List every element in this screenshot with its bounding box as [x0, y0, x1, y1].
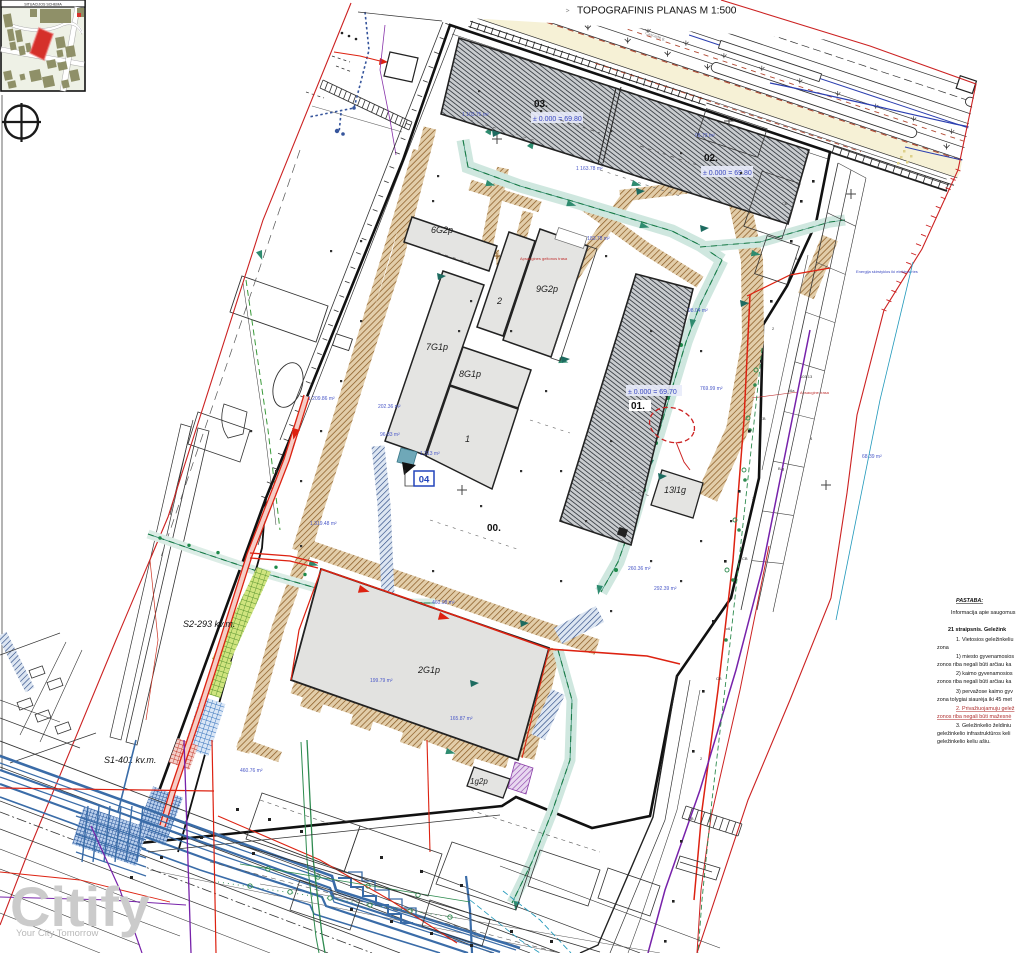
svg-text:Informacija apie saugomus: Informacija apie saugomus	[951, 610, 1016, 616]
svg-text:6G2p: 6G2p	[431, 225, 453, 235]
svg-text:Your City Tomorrow: Your City Tomorrow	[16, 928, 99, 939]
svg-text:769.99 m²: 769.99 m²	[700, 386, 723, 392]
svg-text:9G2p: 9G2p	[536, 284, 558, 294]
svg-text:zona tolygiai siaurėja iki 45: zona tolygiai siaurėja iki 45 met	[937, 697, 1012, 703]
svg-text:± 0.000 = 69.80: ± 0.000 = 69.80	[703, 170, 752, 177]
svg-text:1 313 m²: 1 313 m²	[420, 451, 440, 457]
svg-text:98.04 m²: 98.04 m²	[688, 308, 708, 314]
svg-text:460.76 m²: 460.76 m²	[240, 768, 263, 774]
svg-text:460.08 m²: 460.08 m²	[432, 600, 455, 606]
svg-text:260.36 m²: 260.36 m²	[628, 566, 651, 572]
svg-text:13l1g: 13l1g	[664, 485, 686, 495]
svg-text:± 0.000 = 69.80: ± 0.000 = 69.80	[533, 116, 582, 123]
svg-text:1. Vietosios geležinkeliu: 1. Vietosios geležinkeliu	[956, 637, 1013, 643]
svg-text:1 163.78 m²: 1 163.78 m²	[576, 166, 603, 172]
svg-text:B-g: B-g	[778, 466, 784, 471]
svg-text:3. Geležinkelio želdiniu: 3. Geležinkelio želdiniu	[956, 723, 1011, 729]
svg-text:Apsaugines geltonos trasa: Apsaugines geltonos trasa	[520, 256, 568, 261]
svg-text:TOPOGRAFINIS PLANAS M 1:500: TOPOGRAFINIS PLANAS M 1:500	[577, 6, 737, 17]
svg-text:geležinkelio keliu ašiu.: geležinkelio keliu ašiu.	[937, 739, 991, 745]
svg-text:PASTABA:: PASTABA:	[956, 598, 983, 604]
svg-text:2. Privažiuojamuju gelež: 2. Privažiuojamuju gelež	[956, 706, 1015, 712]
svg-text:2G1p: 2G1p	[417, 665, 440, 675]
svg-text:02.: 02.	[704, 153, 718, 164]
svg-text:103.13: 103.13	[800, 374, 813, 379]
svg-text:04: 04	[419, 475, 430, 486]
svg-text:01.: 01.	[631, 401, 645, 412]
svg-text:21 straipsnis. Geležink: 21 straipsnis. Geležink	[948, 627, 1006, 633]
svg-text:1 319.48 m²: 1 319.48 m²	[310, 521, 337, 527]
svg-text:zona: zona	[937, 645, 949, 651]
svg-text:A: A	[795, 256, 798, 261]
svg-text:Apsaugine trasa: Apsaugine trasa	[800, 390, 830, 395]
svg-text:zonos riba negali būti mažesnė: zonos riba negali būti mažesnė	[937, 714, 1011, 720]
svg-text:96.83 m²: 96.83 m²	[380, 432, 400, 438]
svg-text:00.: 00.	[487, 523, 501, 534]
svg-text:zonos riba negali būti arčiau: zonos riba negali būti arčiau ka	[937, 662, 1011, 668]
svg-text:CB: CB	[716, 676, 722, 681]
svg-text:292.39 m²: 292.39 m²	[654, 586, 677, 592]
svg-text:SITUACIJOS SCHEMA: SITUACIJOS SCHEMA	[24, 2, 62, 6]
svg-text:1 103.75 m²: 1 103.75 m²	[462, 112, 489, 118]
svg-text:CB: CB	[742, 556, 748, 561]
svg-text:3) pervažose kaimo gyv: 3) pervažose kaimo gyv	[956, 689, 1013, 695]
svg-text:03.: 03.	[534, 99, 548, 110]
svg-text:1: 1	[465, 434, 470, 444]
svg-text:2: 2	[496, 296, 502, 306]
svg-text:S2-293 kv.m.: S2-293 kv.m.	[183, 619, 235, 629]
svg-text:CB: CB	[760, 416, 766, 421]
svg-text:zonos riba negali būti arčiau: zonos riba negali būti arčiau ka	[937, 679, 1011, 685]
svg-text:165.87 m²: 165.87 m²	[450, 716, 473, 722]
svg-text:1) miesto gyvenamosios: 1) miesto gyvenamosios	[956, 654, 1014, 660]
svg-text:1 209.86 m²: 1 209.86 m²	[308, 396, 335, 402]
svg-text:68.39 m²: 68.39 m²	[862, 454, 882, 460]
svg-text:202.36 m²: 202.36 m²	[378, 404, 401, 410]
svg-text:199.79 m²: 199.79 m²	[370, 678, 393, 684]
svg-text:8G1p: 8G1p	[459, 369, 481, 379]
svg-text:geležinkelio infrastruktūros k: geležinkelio infrastruktūros keli	[937, 731, 1010, 737]
svg-text:7G1p: 7G1p	[426, 342, 448, 352]
svg-text:± 0.000 = 69.70: ± 0.000 = 69.70	[628, 389, 677, 396]
svg-text:CB: CB	[782, 201, 788, 206]
svg-text:2) kaimo gyvenamosios: 2) kaimo gyvenamosios	[956, 671, 1013, 677]
svg-text:1g2p: 1g2p	[470, 777, 488, 786]
svg-text:Energija skirstyklos iki elekt: Energija skirstyklos iki elektros ries	[856, 269, 918, 274]
svg-text:c6a: c6a	[788, 388, 795, 393]
